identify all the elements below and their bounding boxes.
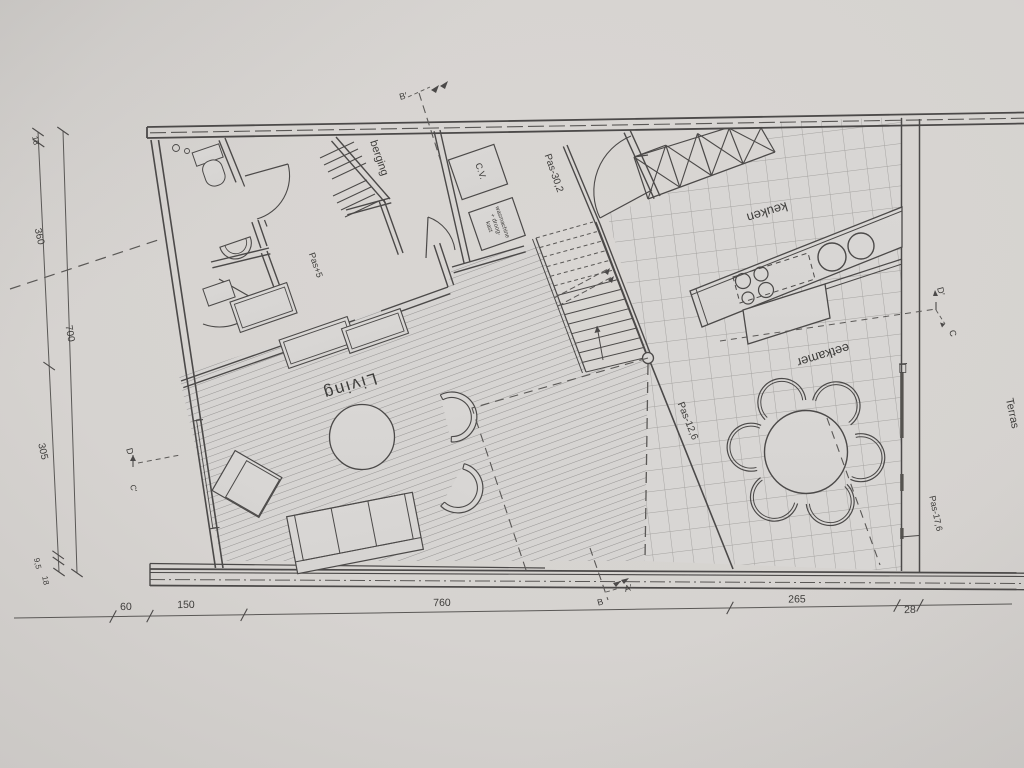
svg-text:265: 265 xyxy=(788,593,806,605)
svg-text:60: 60 xyxy=(120,601,132,613)
svg-text:760: 760 xyxy=(433,597,451,609)
svg-text:150: 150 xyxy=(177,599,195,611)
svg-text:28: 28 xyxy=(904,604,916,616)
